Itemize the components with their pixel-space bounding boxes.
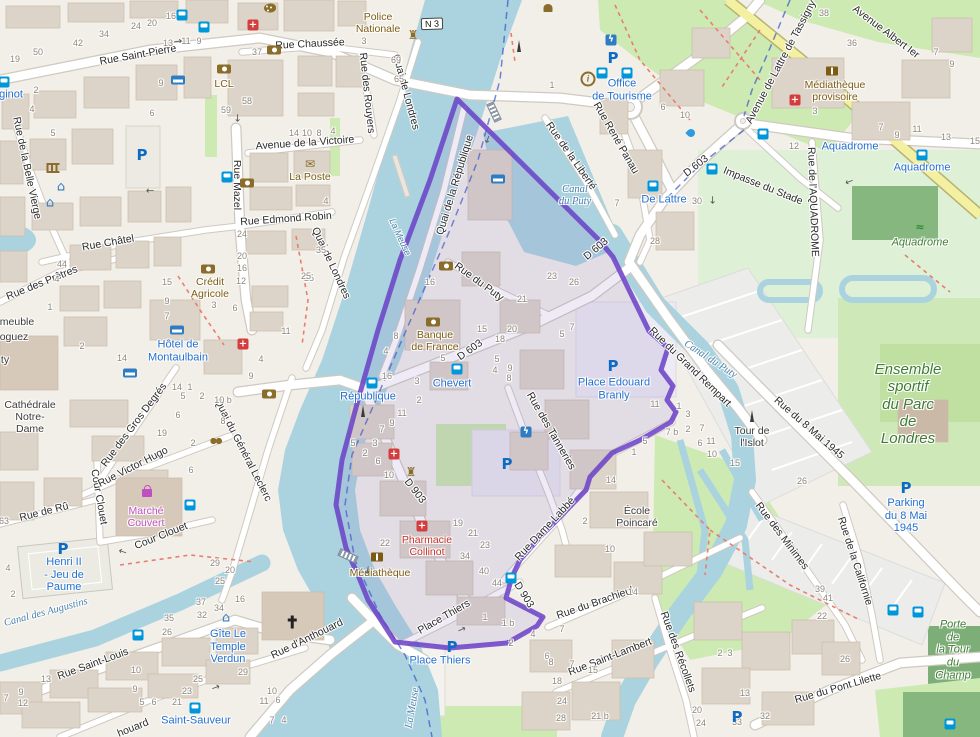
map-labels: Rue Saint-PierreRue de la Belle ViergeRu… [0,0,980,737]
arr-icon: → [361,565,373,575]
housenumber-label: 1 [549,80,554,90]
housenumber-label: 21 [468,528,478,538]
housenumber-label: 29 [210,558,220,568]
housenumber-label: 22 [380,538,390,548]
money-icon [267,46,281,55]
housenumber-label: 23 [182,686,192,696]
housenumber-label: 19 [10,54,20,64]
pharm-icon: + [238,339,249,350]
housenumber-label: 10 [707,449,717,459]
housenumber-label: 5 [559,329,564,339]
bed-icon [170,326,184,335]
housenumber-label: 8 [393,331,398,341]
poi-label-porte-de-la-tour-du-champ: Porte de la Tour du Champ [935,618,970,681]
bus-icon [597,68,608,79]
housenumber-label: 4 [258,354,263,364]
street-label-impasse-du-stade: Impasse du Stade [722,165,805,208]
pharm-icon: + [248,20,259,31]
housenumber-label: 7 [164,311,169,321]
arr-icon: → [232,114,243,122]
housenumber-label: 8 [316,128,321,138]
housenumber-label: 9 [18,687,23,697]
poi-label-mediatheque: Médiathèque [350,567,411,579]
bus-icon [177,10,188,21]
p-icon: P [608,49,619,67]
housenumber-label: 3 [685,409,690,419]
housenumber-label: 19 [157,428,167,438]
poi-label-banque-de-france: Banque de France [411,329,458,353]
housenumber-label: 1 [676,401,681,411]
housenumber-label: 21 b [591,711,609,721]
money-icon [262,390,276,399]
arr-icon: → [843,174,855,187]
road-ref-d903: D 903 [511,580,536,610]
masks-icon [210,437,223,445]
housenumber-label: 9 [507,363,512,373]
housenumber-label: 9 [389,418,394,428]
housenumber-label: 34 [99,29,109,39]
housenumber-label: 1 [187,382,192,392]
housenumber-label: 9 [158,78,163,88]
building-label-roguez-cut: oguez [0,331,28,343]
poi-label-cathedrale-notre-dame: Cathédrale Notre- Dame [4,399,55,435]
housenumber-label: 18 [495,334,505,344]
bed-icon [123,369,137,378]
street-label-cour-clouet: Cour Clouet [88,468,110,525]
housenumber-label: 6 [660,102,665,112]
housenumber-label: 5 [494,354,499,364]
p-icon: P [447,638,458,656]
home-icon: ⌂ [222,612,230,625]
bus-icon [758,129,769,140]
housenumber-label: 12 [789,141,799,151]
building-label-immeuble-cut: meuble [0,316,34,328]
housenumber-label: 9 [248,371,253,381]
housenumber-label: 28 [650,236,660,246]
bus-icon [133,630,144,641]
housenumber-label: 65 [394,74,404,84]
housenumber-label: 6 [544,651,549,661]
water-label-canal-des-augustins: Canal des Augustins [3,596,89,630]
housenumber-label: 29 [238,667,248,677]
bus-icon [945,719,956,730]
housenumber-label: 5 [642,436,647,446]
housenumber-label: 6 [232,303,237,313]
bus-icon [0,77,10,88]
arr-icon: → [210,681,222,694]
poi-label-gite-le-temple-verdun: Gîte Le Temple Verdun [210,628,246,666]
poi-label-office-de-tourisme: Office de Tourisme [592,77,652,102]
castle-icon: ♜ [406,466,417,478]
poi-label-henri-ii-jeu-de-paume: Henri II - Jeu de Paume [44,556,84,594]
p-icon: P [502,455,513,473]
housenumber-label: 4 [281,715,286,725]
housenumber-label: 26 [840,654,850,664]
housenumber-label: 16 [166,11,176,21]
poi-label-police-nationale: Police Nationale [356,11,400,35]
street-label-rue-de-la-liberte: Rue de la Liberté [543,120,599,192]
housenumber-label: 9 [949,59,954,69]
housenumber-label: 7 [559,624,564,634]
poi-label-place-thiers: Place Thiers [410,655,471,668]
housenumber-label: 4 [5,563,10,573]
housenumber-label: 6 [697,438,702,448]
lock-icon [337,548,359,564]
housenumber-label: 10 [302,128,312,138]
obelisk-icon [517,40,521,52]
pharm-icon: + [790,95,801,106]
housenumber-label: 2 [10,589,15,599]
money-icon [240,179,254,188]
street-label-rue-chaussee: Rue Chaussée [275,36,345,52]
water-label-canal-du-puty: Canal du Puty [559,184,591,208]
housenumber-label: 3 [812,106,817,116]
lock-icon [486,101,502,123]
housenumber-label: 33 [732,717,742,727]
housenumber-label: 6 [188,465,193,475]
housenumber-label: 16 [425,277,435,287]
housenumber-label: 20 [225,565,235,575]
housenumber-label: 2 [717,648,722,658]
housenumber-label: 34 [460,551,470,561]
drop-icon [685,127,696,138]
housenumber-label: 3 [361,36,366,46]
housenumber-label: 59 [221,105,231,115]
bus-icon [506,573,517,584]
p-icon: P [137,146,148,164]
street-label-rue-rene-panau: Rue René Panau [591,100,642,176]
street-label-rue-du-8-mai-1945: Rue du 8 Mai 1945 [772,394,847,461]
poi-label-hotel-de-montaulbain: Hôtel de Montaulbain [148,338,208,363]
housenumber-label: 5 [50,128,55,138]
street-label-rue-des-recollets: Rue des Récollets [658,610,698,694]
label-cut-ty: ty [1,354,9,366]
street-label-rue-chatel: Rue Châtel [81,232,135,253]
bus-icon [222,172,233,183]
housenumber-label: 58 [242,96,252,106]
housenumber-label: 10 [605,544,615,554]
bus-icon [199,22,210,33]
housenumber-label: 6 [275,695,280,705]
housenumber-label: 8 [506,373,511,383]
p-icon: P [732,708,743,726]
housenumber-label: 16 [237,263,247,273]
housenumber-label: 4 [383,346,388,356]
housenumber-label: 2 [362,448,367,458]
housenumber-label: 7 [569,659,574,669]
housenumber-label: 7 [269,715,274,725]
housenumber-label: 12 [18,698,28,708]
bus-icon [913,607,924,618]
housenumber-label: 13 [163,38,173,48]
housenumber-label: 7 [3,693,8,703]
stop-label-aquadrome: Aquadrome [894,162,951,175]
stop-label-saint-sauveur: Saint-Sauveur [161,715,231,728]
housenumber-label: 42 [73,38,83,48]
housenumber-label: 44 [492,578,502,588]
housenumber-label: 7 [878,122,883,132]
housenumber-label: 20 [507,324,517,334]
housenumber-label: 11 [397,408,406,418]
money-icon [217,65,231,74]
street-label-quai-de-londres: Quai de Londres [309,225,353,300]
housenumber-label: 14 [289,128,299,138]
charge-icon: ϟ [521,427,532,438]
street-label-rue-mazel: Rue Mazel [231,160,243,210]
housenumber-label: 10 [680,110,690,120]
bus-icon [190,703,201,714]
stop-label-aquadrome: Aquadrome [822,141,879,154]
housenumber-label: 2 [33,85,38,95]
housenumber-label: 2 [190,438,195,448]
housenumber-label: 50 [33,47,43,57]
housenumber-label: 13 [41,674,51,684]
housenumber-label: 3 [727,648,732,658]
arr-icon: → [117,544,129,557]
housenumber-label: 14 [172,382,182,392]
housenumber-label: 2 [79,341,84,351]
poi-label-marche-couvert: Marché Couvert [128,505,165,529]
street-label-anthouard-cut: houard [116,716,151,737]
housenumber-label: 3 [211,300,216,310]
palette-icon [264,4,276,13]
stop-label-republique: République [340,391,396,404]
bed-icon [171,76,185,85]
map-canvas[interactable]: Rue Saint-PierreRue de la Belle ViergeRu… [0,0,980,737]
housenumber-label: 41 [823,593,833,603]
book-icon [826,67,838,76]
housenumber-label: 36 [847,38,857,48]
poi-label-la-poste: La Poste [289,171,330,183]
housenumber-label: 40 [479,566,489,576]
street-label-rue-des-rouyers: Rue des Rouyers [357,52,377,134]
road-ref-d903: D 903 [402,476,429,506]
housenumber-label: 10 [131,665,141,675]
housenumber-label: 8 [220,416,225,426]
housenumber-label: 21 [172,697,182,707]
housenumber-label: 4 [330,126,335,136]
shop-icon [142,489,152,497]
road-ref-d603: D 603 [681,153,711,180]
housenumber-label: 2 [582,516,587,526]
housenumber-label: 35 [316,245,326,255]
street-label-rue-du-brachieul: Rue du Brachieul [555,584,635,622]
housenumber-label: 25 [304,273,314,283]
housenumber-label: 11 [706,436,715,446]
obelisk-icon [750,410,754,422]
street-label-rue-des-minimes: Rue des Minimes [753,500,811,572]
housenumber-label: 4 [492,365,497,375]
housenumber-label: 25 [193,674,203,684]
housenumber-label: 25 [301,271,311,281]
street-label-rue-saint-lambert: Rue Saint-Lambert [567,636,654,679]
housenumber-label: 4 [29,104,34,114]
poi-label-credit-agricole: Crédit Agricole [191,276,229,300]
obelisk-icon [361,405,365,417]
housenumber-label: 63 [0,516,9,526]
housenumber-label: 8 [548,657,553,667]
street-label-rue-de-la-californie: Rue de la Californie [835,515,875,606]
road-ref-d603: D 603 [455,337,485,363]
housenumber-label: 12 [236,276,246,286]
housenumber-label: 26 [162,627,172,637]
street-label-avenue-albert-ier: Avenue Albert Ier [850,3,921,61]
housenumber-label: 1 [47,302,52,312]
street-label-rue-de-ru: Rue de Rû [18,500,70,524]
housenumber-label: 20 [147,18,157,28]
housenumber-label: 19 [453,518,463,528]
bus-icon [888,605,899,616]
housenumber-label: 9 [164,296,169,306]
housenumber-label: 4 [530,629,535,639]
housenumber-label: 2 [416,395,421,405]
arr-icon: → [146,185,154,196]
housenumber-label: 23 [547,271,557,281]
housenumber-label: 7 [614,198,619,208]
bus-icon [452,364,463,375]
housenumber-label: 14 [606,475,616,485]
housenumber-label: 14 [628,587,638,597]
housenumber-label: 32 [197,610,207,620]
housenumber-label: 11 [650,399,659,409]
housenumber-label: 14 [117,353,127,363]
street-label-place-thiers: Place Thiers [416,597,472,637]
housenumber-label: 6 [375,456,380,466]
housenumber-label: 4 [54,274,59,284]
housenumber-label: 3 [414,376,419,386]
housenumber-label: 4 [323,196,328,206]
street-label-rue-victor-hugo: Rue Victor Hugo [96,444,170,490]
pharm-icon: + [389,449,400,460]
housenumber-label: 7 [379,424,384,434]
pharm-icon: + [417,521,428,532]
road-ref-d603: D 603 [581,235,610,262]
housenumber-label: 23 [480,540,490,550]
bus-icon [648,181,659,192]
housenumber-label: 26 [569,277,579,287]
water-label-la-meuse: La Meuse [387,217,413,257]
home-icon: ⌂ [57,181,65,194]
housenumber-label: 11 [912,124,921,134]
poi-label-tour-de-l-islot: Tour de l'Islot [734,425,769,449]
stop-label-de-lattre: De Lattre [641,194,686,207]
museum-icon [47,163,60,173]
housenumber-label: 11 [281,326,290,336]
poi-label-parking-du-8-mai-1945: Parking du 8 Mai 1945 [885,497,927,535]
place-label-maginot-cut: ginot [0,89,23,102]
housenumber-label: 5 [139,697,144,707]
housenumber-label: 9 [132,684,137,694]
housenumber-label: 28 [556,713,566,723]
street-label-rue-edmond-robin: Rue Edmond Robin [240,210,332,228]
housenumber-label: 2 [199,391,204,401]
housenumber-label: 37 [196,597,206,607]
housenumber-label: 3 [372,438,377,448]
street-label-rue-du-pont-lilette: Rue du Pont Lilette [793,670,882,706]
poi-label-lcl: LCL [214,78,233,90]
bell-icon [544,4,553,12]
housenumber-label: 21 [517,294,527,304]
street-label-quai-du-general-leclerc: Quai du Général Leclerc [212,397,274,504]
housenumber-label: 38 [819,8,829,18]
water-label-canal-du-puty: Canal du Puty [681,338,738,381]
housenumber-label: 39 [815,584,825,594]
p-icon: P [901,479,912,497]
housenumber-label: 2 [508,638,513,648]
housenumber-label: 35 [164,613,174,623]
housenumber-label: 9 [196,36,201,46]
housenumber-label: 11 [181,36,190,46]
housenumber-label: 22 [817,611,827,621]
housenumber-label: 6 [149,108,154,118]
housenumber-label: 15 [730,458,740,468]
housenumber-label: 15 [588,665,598,675]
housenumber-label: 7 [699,423,704,433]
poi-label-aquadrome-park: Aquadrome [892,237,949,250]
housenumber-label: 24 [557,696,567,706]
bus-icon [622,68,633,79]
street-label-rue-d-anthouard: Rue d'Anthouard [269,616,345,661]
bus-icon [367,378,378,389]
housenumber-label: 7 [933,47,938,57]
street-label-quai-de-londres: Quai de Londres [390,53,422,131]
street-label-cour-clouet: Cour Clouet [133,520,189,552]
arr-icon: → [173,36,183,48]
cross-icon [291,616,294,629]
pier-icon [391,154,410,198]
housenumber-label: 25 [215,576,225,586]
housenumber-label: 11 [259,696,268,706]
housenumber-label: 44 [57,259,67,269]
housenumber-label: 24 [131,21,141,31]
street-label-rue-saint-louis: Rue Saint-Louis [56,646,130,683]
arr-icon: → [480,133,493,145]
stop-label-chevert: Chevert [433,378,472,391]
street-label-rue-des-gros-degres: Rue des Gros Degrés [99,381,170,469]
poi-label-place-edouard-branly: Place Edouard Branly [578,376,650,401]
street-label-rue-de-la-belle-vierge: Rue de la Belle Vierge [10,116,43,221]
street-label-rue-du-puty: Rue du Puty [452,260,506,304]
housenumber-label: 1 [631,447,636,457]
housenumber-label: 1 [482,612,487,622]
housenumber-label: 5 [180,391,185,401]
mail-icon: ✉ [305,158,315,170]
street-label-avenue-de-lattre-de-tassigny: Avenue de Lattre de Tassigny [743,0,818,126]
street-label-rue-du-grand-rempart: Rue du Grand Rempart [647,325,734,409]
housenumber-label: 37 [252,47,262,57]
housenumber-label: 2 [685,424,690,434]
housenumber-label: 1 b [502,618,515,628]
water-label-la-meuse: La Meuse [403,687,422,730]
housenumber-label: 10 b [214,395,232,405]
p-icon: P [58,540,69,558]
housenumber-label: 6 [175,410,180,420]
street-label-rue-de-l-aquadrome: Rue de l'AQUADROME [805,147,821,257]
poi-label-ecole-poincare: École Poincaré [616,505,657,529]
housenumber-label: 16 [382,371,392,381]
book-icon [371,553,383,562]
housenumber-label: 7 [569,322,574,332]
housenumber-label: 10 [267,686,277,696]
p-icon: P [608,357,619,375]
housenumber-label: 20 [692,705,702,715]
housenumber-label: 9 [894,130,899,140]
bus-icon [185,500,196,511]
street-label-rue-des-tanneries: Rue des Tanneries [524,390,578,472]
bed-icon [491,175,505,184]
housenumber-label: 15 [477,324,487,334]
money-icon [201,265,215,274]
